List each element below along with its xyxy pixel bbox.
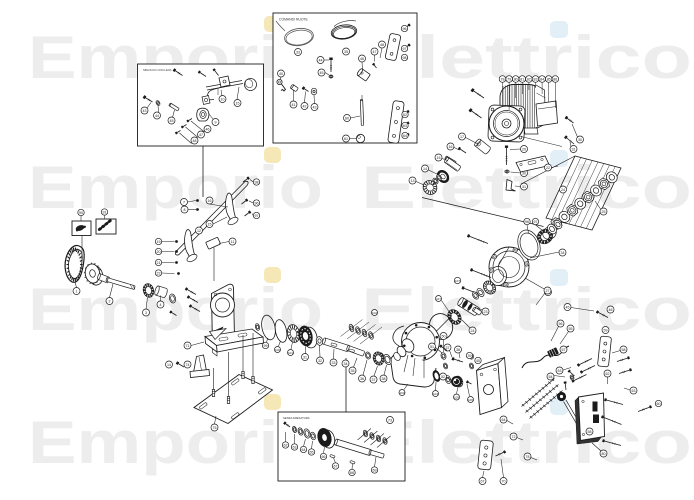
svg-text:80: 80 <box>514 77 518 81</box>
svg-text:Emporio: Emporio <box>28 154 323 221</box>
svg-text:82: 82 <box>527 77 531 81</box>
svg-text:97: 97 <box>534 220 538 224</box>
svg-text:13: 13 <box>411 179 415 183</box>
svg-text:90: 90 <box>79 211 83 215</box>
svg-text:7: 7 <box>183 200 185 204</box>
svg-text:67: 67 <box>481 479 485 483</box>
svg-text:37: 37 <box>446 346 450 350</box>
svg-text:78: 78 <box>501 77 505 81</box>
svg-text:86: 86 <box>553 77 557 81</box>
svg-text:67: 67 <box>334 464 338 468</box>
svg-text:64: 64 <box>302 448 306 452</box>
svg-text:98: 98 <box>403 56 407 60</box>
svg-text:81: 81 <box>520 77 524 81</box>
svg-text:96: 96 <box>403 27 407 31</box>
svg-text:54: 54 <box>549 375 553 379</box>
svg-text:31: 31 <box>522 185 526 189</box>
svg-text:45: 45 <box>566 305 570 309</box>
svg-text:61: 61 <box>344 137 348 141</box>
svg-text:43: 43 <box>313 105 317 109</box>
svg-text:35: 35 <box>344 50 348 54</box>
svg-text:97: 97 <box>403 47 407 51</box>
svg-text:69: 69 <box>373 468 377 472</box>
svg-text:64: 64 <box>403 134 407 138</box>
svg-text:32: 32 <box>318 359 322 363</box>
svg-text:38: 38 <box>456 348 460 352</box>
svg-text:68: 68 <box>350 471 354 475</box>
svg-text:96: 96 <box>255 201 259 205</box>
svg-text:38: 38 <box>382 377 386 381</box>
svg-text:24: 24 <box>471 329 475 333</box>
svg-text:102: 102 <box>372 311 377 315</box>
svg-text:50: 50 <box>442 334 446 338</box>
svg-text:47: 47 <box>199 133 203 137</box>
svg-text:63: 63 <box>403 124 407 128</box>
svg-text:64: 64 <box>502 418 506 422</box>
svg-text:34: 34 <box>561 251 565 255</box>
svg-text:84: 84 <box>540 77 544 81</box>
svg-text:44: 44 <box>155 114 159 118</box>
svg-text:9: 9 <box>215 120 217 124</box>
svg-text:24: 24 <box>561 188 565 192</box>
svg-text:60: 60 <box>345 116 349 120</box>
svg-text:99: 99 <box>264 344 268 348</box>
svg-text:35: 35 <box>351 369 355 373</box>
svg-text:3: 3 <box>145 311 147 315</box>
svg-text:21: 21 <box>157 261 161 265</box>
svg-text:103: 103 <box>399 391 404 395</box>
svg-text:74: 74 <box>186 363 190 367</box>
svg-text:19: 19 <box>157 240 161 244</box>
svg-text:41: 41 <box>292 103 296 107</box>
svg-text:96: 96 <box>525 220 529 224</box>
svg-text:39: 39 <box>468 354 472 358</box>
svg-text:14: 14 <box>423 167 427 171</box>
svg-text:SBLOCCO CON LEVA: SBLOCCO CON LEVA <box>143 68 172 72</box>
svg-text:12: 12 <box>197 229 201 233</box>
svg-text:22: 22 <box>157 271 161 275</box>
svg-text:Emporio: Emporio <box>28 276 323 343</box>
svg-text:55: 55 <box>569 327 573 331</box>
svg-text:107: 107 <box>455 279 460 283</box>
svg-text:23: 23 <box>484 310 488 314</box>
svg-text:17: 17 <box>460 135 464 139</box>
svg-text:46: 46 <box>609 308 613 312</box>
svg-text:15: 15 <box>208 222 212 226</box>
svg-text:66: 66 <box>322 455 326 459</box>
svg-text:101: 101 <box>288 351 293 355</box>
svg-text:4: 4 <box>160 303 162 307</box>
svg-text:15: 15 <box>236 101 240 105</box>
svg-text:59: 59 <box>604 328 608 332</box>
svg-text:SENZA FRESATURA: SENZA FRESATURA <box>283 416 310 420</box>
svg-text:15: 15 <box>437 156 441 160</box>
svg-text:37: 37 <box>372 378 376 382</box>
svg-text:60: 60 <box>657 402 661 406</box>
svg-text:33: 33 <box>332 361 336 365</box>
svg-text:97: 97 <box>255 214 259 218</box>
svg-text:8: 8 <box>184 208 186 212</box>
svg-text:65: 65 <box>310 450 314 454</box>
svg-text:40: 40 <box>279 72 283 76</box>
svg-text:75: 75 <box>213 426 217 430</box>
svg-text:72: 72 <box>512 435 516 439</box>
svg-text:91: 91 <box>103 210 107 214</box>
svg-text:14: 14 <box>167 363 171 367</box>
svg-text:117: 117 <box>436 297 441 301</box>
svg-text:46: 46 <box>206 127 210 131</box>
svg-text:63: 63 <box>293 445 297 449</box>
svg-text:11: 11 <box>231 240 235 244</box>
svg-text:44: 44 <box>319 58 323 62</box>
svg-text:85: 85 <box>547 77 551 81</box>
svg-text:16: 16 <box>449 145 453 149</box>
svg-text:58: 58 <box>622 348 626 352</box>
svg-text:52: 52 <box>441 375 445 379</box>
svg-text:80: 80 <box>602 452 606 456</box>
svg-text:22: 22 <box>546 166 550 170</box>
svg-text:16: 16 <box>208 199 212 203</box>
svg-text:30: 30 <box>578 138 582 142</box>
svg-text:29: 29 <box>522 147 526 151</box>
svg-text:83: 83 <box>534 77 538 81</box>
svg-text:62: 62 <box>606 372 610 376</box>
svg-text:100: 100 <box>275 348 280 352</box>
svg-text:34: 34 <box>344 362 348 366</box>
svg-text:42: 42 <box>303 104 307 108</box>
svg-text:70: 70 <box>502 479 506 483</box>
svg-text:71: 71 <box>186 344 190 348</box>
svg-text:40: 40 <box>476 359 480 363</box>
svg-text:43: 43 <box>143 109 147 113</box>
svg-text:45: 45 <box>170 119 174 123</box>
svg-text:79: 79 <box>507 77 511 81</box>
svg-text:2: 2 <box>109 299 111 303</box>
svg-text:51: 51 <box>430 345 434 349</box>
svg-text:106: 106 <box>468 398 473 402</box>
svg-text:56: 56 <box>559 322 563 326</box>
svg-text:20: 20 <box>157 250 161 254</box>
svg-text:Elettrico: Elettrico <box>361 409 692 476</box>
svg-text:25: 25 <box>602 210 606 214</box>
svg-text:36: 36 <box>360 377 364 381</box>
svg-text:27: 27 <box>546 289 550 293</box>
svg-text:98: 98 <box>255 180 259 184</box>
svg-text:31: 31 <box>572 147 576 151</box>
svg-text:10: 10 <box>221 97 225 101</box>
svg-text:62: 62 <box>403 113 407 117</box>
svg-text:63: 63 <box>632 389 636 393</box>
svg-text:46: 46 <box>360 57 364 61</box>
svg-text:62: 62 <box>284 443 288 447</box>
svg-text:1: 1 <box>76 289 78 293</box>
svg-text:COMANDI RUOTE: COMANDI RUOTE <box>279 18 309 22</box>
svg-text:48: 48 <box>380 43 384 47</box>
svg-text:47: 47 <box>373 50 377 54</box>
svg-text:45: 45 <box>320 71 324 75</box>
svg-text:58: 58 <box>588 430 592 434</box>
svg-text:73: 73 <box>388 418 392 422</box>
svg-text:78: 78 <box>526 455 530 459</box>
svg-text:105: 105 <box>454 395 459 399</box>
svg-text:48: 48 <box>193 139 197 143</box>
svg-text:33: 33 <box>296 50 300 54</box>
svg-text:57: 57 <box>562 348 566 352</box>
svg-text:31: 31 <box>303 355 307 359</box>
svg-text:53: 53 <box>558 369 562 373</box>
svg-text:104: 104 <box>433 392 438 396</box>
